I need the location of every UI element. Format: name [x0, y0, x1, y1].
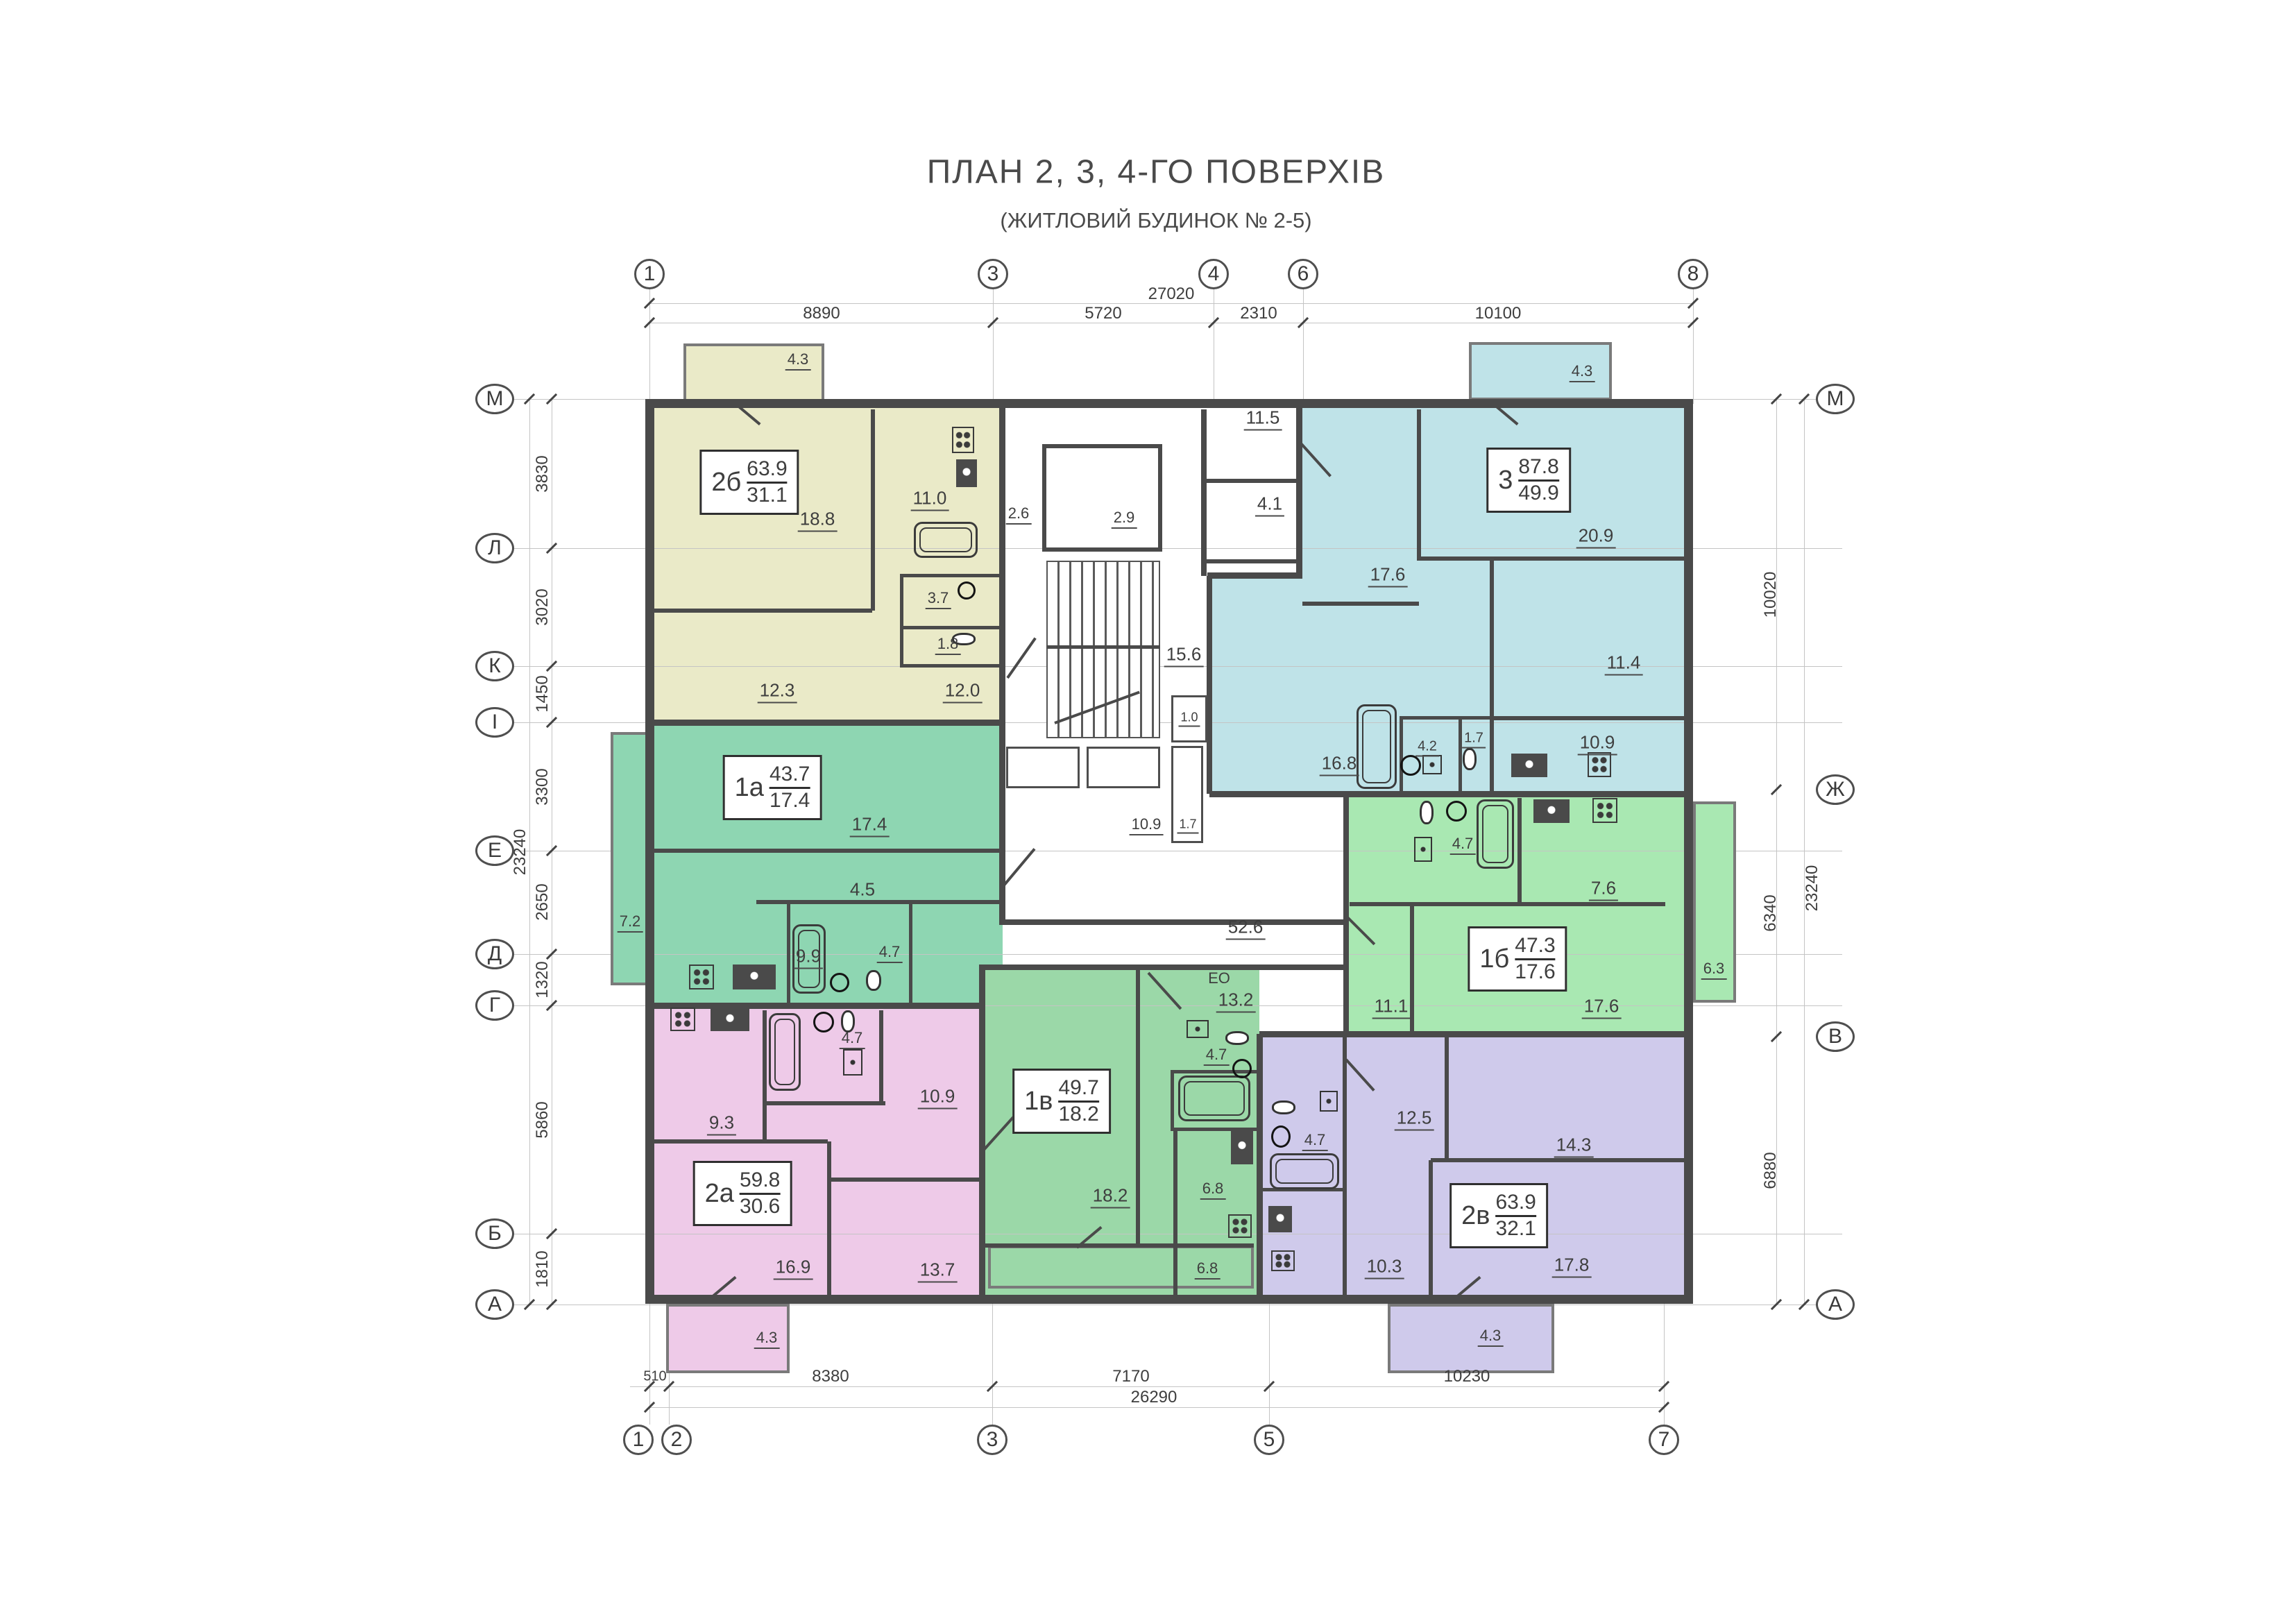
axis-top-8: 8 — [1678, 259, 1708, 289]
axis-left-L: Л — [475, 533, 514, 563]
axis-left-B: Б — [475, 1218, 514, 1249]
room-17-4: 17.4 — [850, 814, 890, 835]
axis-bottom-2: 2 — [661, 1425, 692, 1455]
sink-unit-2a — [711, 1008, 749, 1031]
dim-line-right-overall — [1804, 399, 1805, 1305]
dim-3020: 3020 — [533, 588, 552, 625]
room-6-8-kitchen: 6.8 — [1200, 1180, 1226, 1198]
apartment-id: 2б — [711, 468, 741, 498]
part-3-7 — [1400, 718, 1403, 791]
apt-1a-fill — [650, 723, 1003, 1006]
axis-right-V: В — [1816, 1021, 1855, 1052]
apartment-areas: 63.931.1 — [747, 457, 787, 507]
balcony-2v — [1388, 1304, 1554, 1373]
apartment-box-1а: 1а43.717.4 — [723, 755, 822, 820]
axis-left-G: Г — [475, 990, 514, 1021]
balcony-label-2a: 4.3 — [754, 1329, 780, 1347]
wall-lift-l — [1042, 444, 1046, 552]
room-1-8: 1.8 — [935, 635, 961, 653]
apartment-areas: 47.317.6 — [1515, 934, 1555, 984]
apartment-box-3: 387.849.9 — [1486, 448, 1571, 513]
wall-hall3-left — [1207, 576, 1212, 794]
stove-1b — [1592, 798, 1617, 823]
part-2a-4 — [650, 1139, 828, 1144]
washer-1v — [1187, 1020, 1209, 1038]
dim-line-bottom-overall — [649, 1407, 1664, 1408]
part-1a-2 — [756, 900, 999, 904]
part-2v-1 — [1445, 1036, 1449, 1160]
part-2v-4 — [1343, 1034, 1347, 1299]
living-area: 17.6 — [1515, 958, 1555, 985]
toilet-1v — [1225, 1031, 1249, 1045]
tub-2a — [769, 1013, 801, 1091]
room-4-5: 4.5 — [848, 879, 877, 901]
dim-1810: 1810 — [533, 1250, 552, 1287]
dim-26290: 26290 — [1131, 1388, 1177, 1407]
axis-left-M: М — [475, 384, 514, 414]
part-2b-bath-l — [900, 574, 903, 668]
wall-hall3-top — [1207, 572, 1302, 579]
axis-col-3b — [992, 1295, 993, 1425]
page-title: ПЛАН 2, 3, 4-ГО ПОВЕРХІВ — [927, 153, 1386, 192]
part-2b-bath-t — [900, 574, 1001, 577]
stair-landing-wall — [1046, 645, 1160, 649]
part-1a-1 — [650, 849, 999, 853]
room-4-7-1b: 4.7 — [1450, 835, 1476, 853]
axis-left-K: К — [475, 651, 514, 681]
part-2b-bath-m — [900, 626, 1001, 629]
dim-7170: 7170 — [1112, 1367, 1149, 1386]
axis-right-A: А — [1816, 1289, 1855, 1320]
apartment-box-1в: 1в49.718.2 — [1012, 1069, 1111, 1134]
apartment-box-2в: 2в63.932.1 — [1449, 1183, 1548, 1248]
axis-left-D: Д — [475, 939, 514, 969]
part-2v-2 — [1431, 1158, 1688, 1162]
axis-col-4 — [1214, 289, 1214, 404]
room-13-2: 13.2 — [1216, 989, 1256, 1011]
dim-1320: 1320 — [533, 961, 552, 998]
axis-top-4: 4 — [1198, 259, 1229, 289]
dim-5720: 5720 — [1085, 304, 1121, 323]
total-area: 47.3 — [1515, 934, 1555, 958]
loggia-1a — [611, 732, 650, 985]
wall-1v-2v — [1257, 1034, 1263, 1299]
stove-2a — [670, 1008, 695, 1031]
room-16-8: 16.8 — [1320, 753, 1359, 774]
room-11-5: 11.5 — [1244, 407, 1282, 429]
toilet-1b — [1420, 801, 1434, 824]
living-area: 17.4 — [769, 787, 810, 813]
wall-ext-top — [645, 399, 1693, 408]
apartment-id: 3 — [1498, 466, 1513, 495]
dim-510: 510 — [643, 1369, 666, 1385]
axis-bottom-7: 7 — [1649, 1425, 1679, 1455]
balcony-label-2v: 4.3 — [1478, 1327, 1504, 1345]
elevator-car-2 — [1087, 747, 1160, 788]
part-1v-1 — [1136, 970, 1140, 1248]
balcony-label-3: 4.3 — [1570, 362, 1595, 380]
basin-1a — [830, 973, 849, 992]
axis-col-6 — [1303, 289, 1304, 404]
sink-unit-2v — [1268, 1206, 1292, 1232]
part-2v-3 — [1429, 1160, 1433, 1299]
part-3-5 — [1490, 556, 1494, 791]
part-2b-2 — [650, 609, 872, 613]
room-4-7-1a: 4.7 — [877, 943, 903, 961]
room-10-3: 10.3 — [1365, 1256, 1404, 1277]
room-18-8: 18.8 — [798, 509, 837, 530]
basin-1b — [1446, 801, 1467, 822]
part-1b-1 — [1517, 798, 1522, 904]
apartment-areas: 63.932.1 — [1495, 1191, 1536, 1241]
room-2-6: 2.6 — [1006, 504, 1032, 522]
sink-unit-3 — [1511, 754, 1547, 777]
room-6-8-balcony: 6.8 — [1195, 1259, 1221, 1277]
room-1-7-core: 1.7 — [1177, 817, 1198, 832]
toilet-2v — [1272, 1101, 1295, 1114]
room-15-6: 15.6 — [1164, 644, 1204, 665]
balcony-label-2b: 4.3 — [785, 350, 811, 368]
room-4-7-1v: 4.7 — [1204, 1046, 1230, 1064]
dim-5860: 5860 — [533, 1101, 552, 1138]
wall-lift-t — [1042, 444, 1162, 448]
dim-10020: 10020 — [1761, 572, 1780, 618]
room-7-2: 7.2 — [618, 912, 643, 931]
washer-3 — [1422, 755, 1442, 774]
room-11-4: 11.4 — [1605, 652, 1643, 674]
floor-plan: ПЛАН 2, 3, 4-ГО ПОВЕРХІВ (ЖИТЛОВИЙ БУДИН… — [0, 0, 2296, 1623]
living-area: 31.1 — [747, 482, 787, 508]
axis-bottom-5: 5 — [1254, 1425, 1284, 1455]
apartment-box-2а: 2а59.830.6 — [693, 1161, 792, 1226]
toilet-1a — [866, 970, 881, 991]
room-3-7: 3.7 — [926, 589, 951, 607]
part-1v-6 — [985, 1243, 1254, 1248]
total-area: 49.7 — [1058, 1076, 1098, 1101]
dim-10230: 10230 — [1444, 1367, 1490, 1386]
room-4-1: 4.1 — [1255, 493, 1284, 515]
sink-unit-1b — [1533, 799, 1570, 823]
room-14-3: 14.3 — [1554, 1135, 1594, 1156]
washer-2a — [843, 1049, 862, 1076]
apartment-areas: 59.830.6 — [740, 1169, 780, 1218]
room-1-0-core: 1.0 — [1178, 711, 1200, 725]
living-area: 49.9 — [1518, 479, 1558, 506]
wall-corr115-left — [1201, 409, 1207, 576]
room-eo: ЕО — [1208, 969, 1230, 987]
dim-10100: 10100 — [1475, 304, 1522, 323]
room-9-3: 9.3 — [707, 1112, 736, 1134]
total-area: 87.8 — [1518, 455, 1558, 479]
wall-core-right-top — [1296, 404, 1302, 577]
part-3-2 — [1417, 556, 1688, 561]
stove-2b — [952, 427, 974, 453]
wall-1b-2v — [1259, 1031, 1688, 1037]
room-20-9: 20.9 — [1576, 525, 1616, 547]
part-3-4 — [1492, 716, 1688, 720]
room-4-7-2a: 4.7 — [840, 1029, 865, 1047]
sink-unit-1v — [1231, 1130, 1253, 1164]
room-17-8: 17.8 — [1552, 1255, 1592, 1276]
tub-2b — [914, 522, 978, 558]
apartment-areas: 43.717.4 — [769, 763, 810, 813]
axis-top-6: 6 — [1288, 259, 1318, 289]
part-3-6 — [1400, 716, 1492, 720]
room-1-7-3: 1.7 — [1462, 731, 1486, 747]
tub-1v — [1178, 1076, 1250, 1121]
tub-3 — [1357, 704, 1397, 789]
room-12-3: 12.3 — [758, 680, 797, 702]
basin-2a — [813, 1012, 834, 1033]
apt-2a-fill — [650, 1006, 982, 1299]
room-18-2: 18.2 — [1091, 1185, 1130, 1207]
axis-top-1: 1 — [634, 259, 665, 289]
wall-ext-right — [1684, 399, 1693, 1304]
apartment-box-1б: 1б47.317.6 — [1468, 926, 1567, 992]
axis-right-M: М — [1816, 384, 1855, 414]
part-2b-bath-b — [900, 664, 1001, 668]
page-subtitle: (ЖИТЛОВИЙ БУДИНОК № 2-5) — [1000, 208, 1311, 233]
apt-3-fill-hall — [1209, 572, 1300, 794]
washer-1b — [1414, 837, 1432, 862]
axis-col-3 — [993, 289, 994, 404]
wall-lift-r — [1158, 444, 1162, 552]
part-1a-4 — [909, 900, 912, 1003]
part-1v-5 — [1173, 1128, 1177, 1299]
stove-1v — [1228, 1214, 1252, 1238]
part-1v-4 — [1171, 1070, 1174, 1131]
axis-bottom-1: 1 — [623, 1425, 654, 1455]
axis-col-8 — [1693, 289, 1694, 404]
apartment-id: 2а — [705, 1179, 734, 1209]
apartment-id: 2в — [1461, 1201, 1490, 1231]
wall-115-41 — [1204, 479, 1301, 483]
part-1a-3 — [787, 900, 790, 1003]
part-2a-6 — [827, 1141, 831, 1299]
wall-2a-1v — [979, 965, 985, 1299]
axis-left-A: А — [475, 1289, 514, 1320]
room-10-9-3: 10.9 — [1578, 732, 1617, 754]
part-3-3 — [1302, 602, 1419, 606]
sink-unit-2b — [956, 459, 977, 487]
tub-1b — [1477, 799, 1514, 869]
axis-left-I: І — [475, 707, 514, 738]
wall-41-bottom — [1204, 559, 1301, 563]
tub-2v — [1270, 1153, 1339, 1189]
total-area: 63.9 — [747, 457, 787, 482]
stove-3 — [1588, 752, 1611, 777]
axis-left-E: Е — [475, 835, 514, 866]
dim-8890: 8890 — [803, 304, 840, 323]
room-10-9-2a: 10.9 — [918, 1086, 958, 1107]
part-2a-2 — [763, 1101, 885, 1105]
basin-2v — [1271, 1125, 1291, 1148]
basin-3 — [1400, 755, 1421, 776]
stove-1a — [689, 965, 714, 989]
dim-1450: 1450 — [533, 675, 552, 712]
apartment-areas: 87.849.9 — [1518, 455, 1558, 505]
wall-3-1b — [1209, 791, 1688, 797]
wall-corr526-top — [999, 919, 1346, 925]
room-4-7-2v: 4.7 — [1302, 1131, 1328, 1149]
basin-1v — [1232, 1059, 1252, 1078]
room-4-2: 4.2 — [1415, 739, 1439, 755]
part-1b-2 — [1350, 902, 1665, 906]
room-12-0: 12.0 — [943, 680, 983, 702]
toilet-3 — [1463, 748, 1477, 770]
part-2a-5 — [828, 1178, 982, 1182]
basin-2b — [958, 581, 976, 600]
wall-1b-left — [1343, 794, 1349, 1034]
dim-6880: 6880 — [1761, 1152, 1780, 1189]
room-11-1: 11.1 — [1372, 996, 1411, 1017]
room-10-9-core: 10.9 — [1130, 815, 1164, 833]
part-3-8 — [1459, 718, 1462, 791]
sink-unit-1a — [733, 965, 776, 989]
dim-2310: 2310 — [1240, 304, 1277, 323]
wall-corr526-bottom — [982, 965, 1346, 970]
room-7-6: 7.6 — [1589, 878, 1618, 899]
wall-lift-b — [1042, 547, 1162, 552]
part-1b-3 — [1410, 904, 1414, 1031]
room-2-9: 2.9 — [1112, 509, 1137, 527]
dim-23240-right: 23240 — [1803, 865, 1822, 912]
total-area: 43.7 — [769, 763, 810, 787]
part-3-1 — [1417, 409, 1421, 561]
part-2a-3 — [879, 1010, 883, 1105]
room-13-7: 13.7 — [918, 1259, 958, 1281]
living-area: 18.2 — [1058, 1101, 1098, 1127]
axis-row-L — [510, 548, 1842, 549]
wall-2b-1a — [650, 720, 1003, 726]
apartment-id: 1а — [735, 773, 764, 803]
elevator-car-1 — [1006, 747, 1080, 788]
room-16-9: 16.9 — [774, 1257, 813, 1278]
apartment-box-2б: 2б63.931.1 — [699, 450, 799, 515]
total-area: 59.8 — [740, 1169, 780, 1193]
dim-3300: 3300 — [533, 768, 552, 805]
room-17-6-3: 17.6 — [1368, 564, 1408, 586]
dim-3830: 3830 — [533, 455, 552, 492]
room-11-0: 11.0 — [911, 488, 949, 509]
room-12-5: 12.5 — [1395, 1107, 1434, 1129]
washer-2v — [1320, 1091, 1338, 1112]
room-52-6: 52.6 — [1226, 917, 1266, 938]
wall-ext-bottom — [645, 1295, 1693, 1304]
dim-8380: 8380 — [812, 1367, 849, 1386]
axis-right-Zh: Ж — [1816, 774, 1855, 805]
dim-6340: 6340 — [1761, 894, 1780, 931]
total-area: 63.9 — [1495, 1191, 1536, 1215]
dim-line-bottom-seg — [630, 1386, 1664, 1387]
axis-top-3: 3 — [978, 259, 1008, 289]
apartment-id: 1б — [1479, 944, 1509, 974]
part-2a-1 — [763, 1010, 767, 1142]
dim-27020: 27020 — [1148, 284, 1195, 304]
stair-flight — [1046, 561, 1160, 738]
room-17-6-1b: 17.6 — [1582, 996, 1622, 1017]
axis-row-D — [510, 954, 1842, 955]
axis-bottom-3: 3 — [977, 1425, 1007, 1455]
balcony-label-1b: 6.3 — [1701, 960, 1727, 978]
dim-2650: 2650 — [533, 883, 552, 920]
apartment-areas: 49.718.2 — [1058, 1076, 1098, 1126]
living-area: 32.1 — [1495, 1215, 1536, 1241]
living-area: 30.6 — [740, 1193, 780, 1219]
axis-col-5b — [1269, 1295, 1270, 1425]
part-2b-1 — [871, 409, 875, 611]
wall-1a-2a — [650, 1003, 985, 1009]
stove-2v — [1271, 1250, 1295, 1271]
axis-col-1 — [649, 289, 650, 404]
room-9-9: 9.9 — [794, 946, 823, 967]
apartment-id: 1в — [1024, 1087, 1053, 1116]
